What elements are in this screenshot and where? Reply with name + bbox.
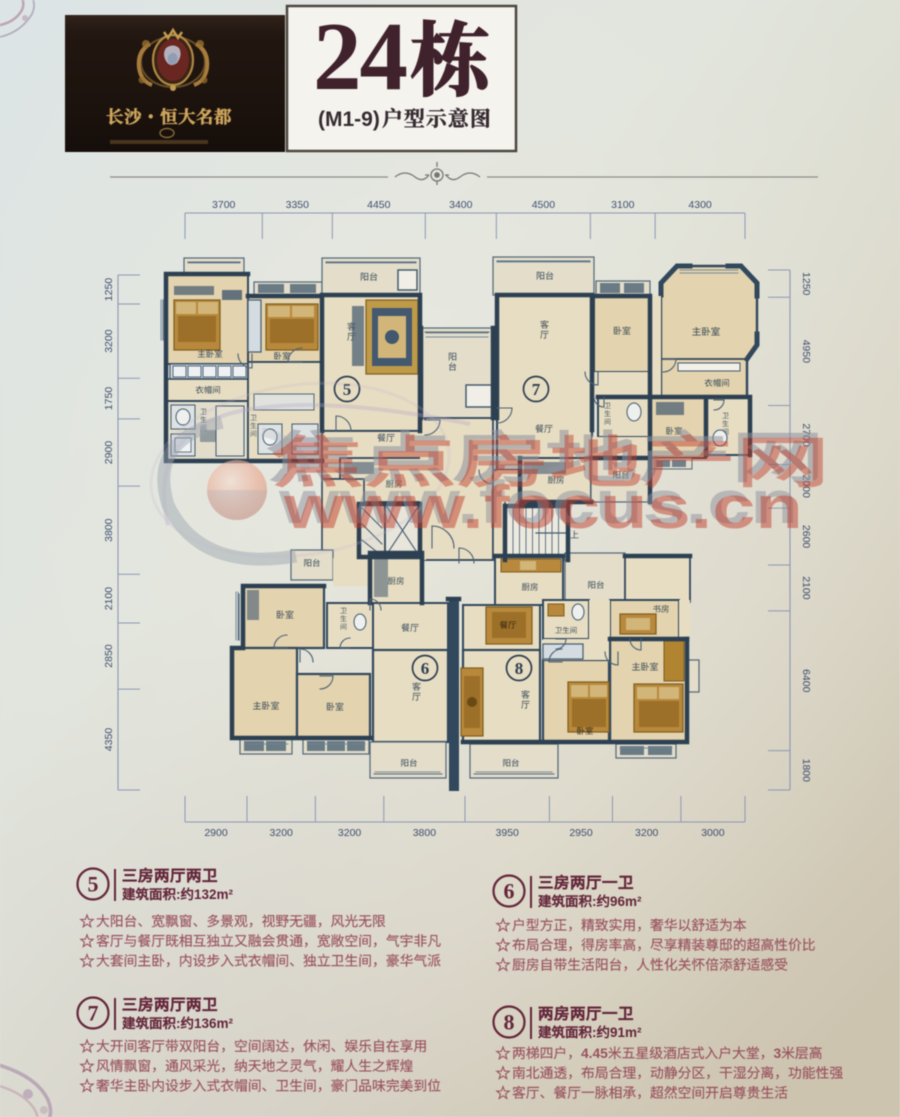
svg-text:3700: 3700 — [212, 199, 236, 211]
svg-text:2900: 2900 — [103, 441, 115, 465]
svg-text:6400: 6400 — [800, 669, 812, 693]
svg-text:3200: 3200 — [270, 827, 294, 839]
svg-text:4450: 4450 — [367, 199, 391, 211]
svg-text:3800: 3800 — [103, 518, 115, 542]
svg-text:4300: 4300 — [688, 199, 712, 211]
svg-text:24: 24 — [313, 3, 407, 110]
svg-text::: : — [176, 887, 181, 902]
svg-text:6: 6 — [421, 659, 430, 678]
svg-text:136m²: 136m² — [194, 1016, 234, 1031]
svg-text:4.45: 4.45 — [581, 1046, 608, 1061]
svg-text:2950: 2950 — [569, 827, 593, 839]
svg-text:4500: 4500 — [532, 199, 556, 211]
svg-text::: : — [592, 894, 597, 909]
svg-text:3800: 3800 — [413, 827, 437, 839]
svg-text:8: 8 — [504, 1010, 515, 1035]
svg-text:4950: 4950 — [800, 340, 812, 364]
svg-text:3200: 3200 — [103, 329, 115, 353]
svg-text:91m²: 91m² — [610, 1025, 642, 1040]
svg-text:4350: 4350 — [103, 728, 115, 752]
svg-text:3100: 3100 — [611, 199, 635, 211]
svg-text:3350: 3350 — [286, 199, 310, 211]
svg-text:132m²: 132m² — [194, 887, 234, 902]
svg-text:2850: 2850 — [103, 644, 115, 668]
svg-text:3950: 3950 — [496, 827, 520, 839]
svg-text:7: 7 — [532, 380, 541, 399]
svg-text:3200: 3200 — [338, 827, 362, 839]
svg-text:7: 7 — [88, 1001, 99, 1026]
svg-text:1800: 1800 — [800, 759, 812, 783]
svg-text:2900: 2900 — [204, 827, 228, 839]
svg-text:1250: 1250 — [103, 278, 115, 302]
svg-text:3400: 3400 — [449, 199, 473, 211]
svg-text:(M1-9): (M1-9) — [318, 108, 380, 131]
svg-text:5: 5 — [88, 872, 99, 897]
svg-text::: : — [592, 1025, 597, 1040]
svg-text:3000: 3000 — [701, 827, 725, 839]
svg-text:1750: 1750 — [103, 387, 115, 411]
svg-text:96m²: 96m² — [610, 894, 642, 909]
svg-text:6: 6 — [504, 879, 515, 904]
svg-text:1250: 1250 — [800, 272, 812, 296]
svg-text:www.focus.cn: www.focus.cn — [283, 473, 803, 541]
svg-text:2100: 2100 — [103, 587, 115, 611]
svg-text:8: 8 — [515, 659, 524, 678]
svg-text::: : — [176, 1016, 181, 1031]
svg-text:3200: 3200 — [635, 827, 659, 839]
svg-text:3: 3 — [774, 1046, 782, 1061]
svg-text:2100: 2100 — [800, 576, 812, 600]
